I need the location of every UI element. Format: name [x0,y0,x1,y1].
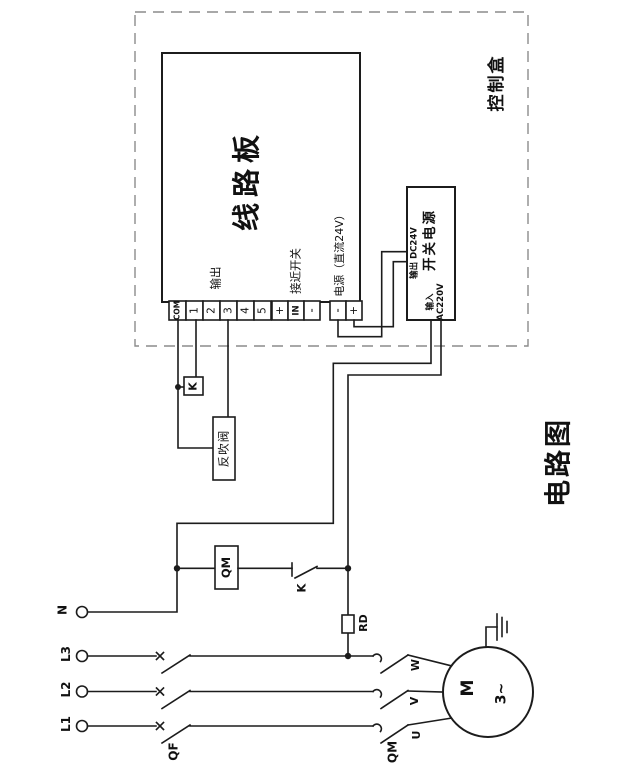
terminal-minus-in-label: - [305,308,319,312]
terminal-power-plus-label: + [347,306,360,315]
terminal-in-label: IN [292,305,302,315]
terminal-4-label: 4 [240,307,252,314]
terminal-l1-label: L1 [59,716,73,732]
diagram-title: 电路图 [543,417,575,507]
psu-output-label: 输出 DC24V [409,227,420,279]
terminal-n-circle [77,607,88,618]
fuse-label: RD [357,614,370,632]
terminal-plus-in-label: + [273,306,286,315]
output-group-label: 输出 [209,267,223,290]
junction-dot-contact-line [345,565,351,571]
wire-v-to-motor [408,691,443,692]
junction-dot-com-relay [175,384,181,390]
terminal-3-label: 3 [223,307,235,314]
terminal-l2-circle [77,686,88,697]
terminal-1-label: 1 [189,307,201,314]
control-box-label: 控制盒 [486,55,507,112]
power-group-label: 电源（直流24V） [332,209,346,297]
proximity-switch-group-label: 接近开关 [289,248,303,294]
fuse-box [342,615,354,633]
terminal-n-label: N [56,605,70,615]
circuit-board-label: 线路板 [230,129,263,231]
psu-label: 开关电源 [421,209,438,271]
k-contact-label: K [295,582,309,592]
circuit-diagram: 控制盒 线路板 输出 接近开关 电源（直流24V） COM 1 2 3 4 5 … [0,0,619,777]
motor-lead-u-label: U [410,731,423,740]
terminal-strip: COM 1 2 3 4 5 + IN - - + [169,301,362,320]
contactor-coil-label: QM [219,557,233,578]
valve-label: 反吹阀 [217,430,231,468]
terminal-com-label: COM [173,301,182,320]
contactor-qm-label: QM [386,741,400,763]
motor-circle [443,647,533,737]
terminal-l2-label: L2 [59,682,73,698]
relay-k-label: K [187,382,200,391]
psu-input-label: 输入 [425,293,436,311]
terminal-l1-circle [77,721,88,732]
terminal-2-label: 2 [206,307,218,314]
terminal-5-label: 5 [257,307,269,314]
motor-label: M [458,680,478,697]
terminal-power-minus-label: - [331,308,345,312]
motor-lead-w-label: W [409,659,422,671]
motor-lead-v-label: V [408,696,421,705]
terminal-l3-label: L3 [59,646,73,662]
terminal-l3-circle [77,651,88,662]
breaker-qf-label: QF [167,742,181,760]
motor-phase-label: 3~ [494,683,510,704]
psu-input-voltage: AC220V [436,283,446,321]
